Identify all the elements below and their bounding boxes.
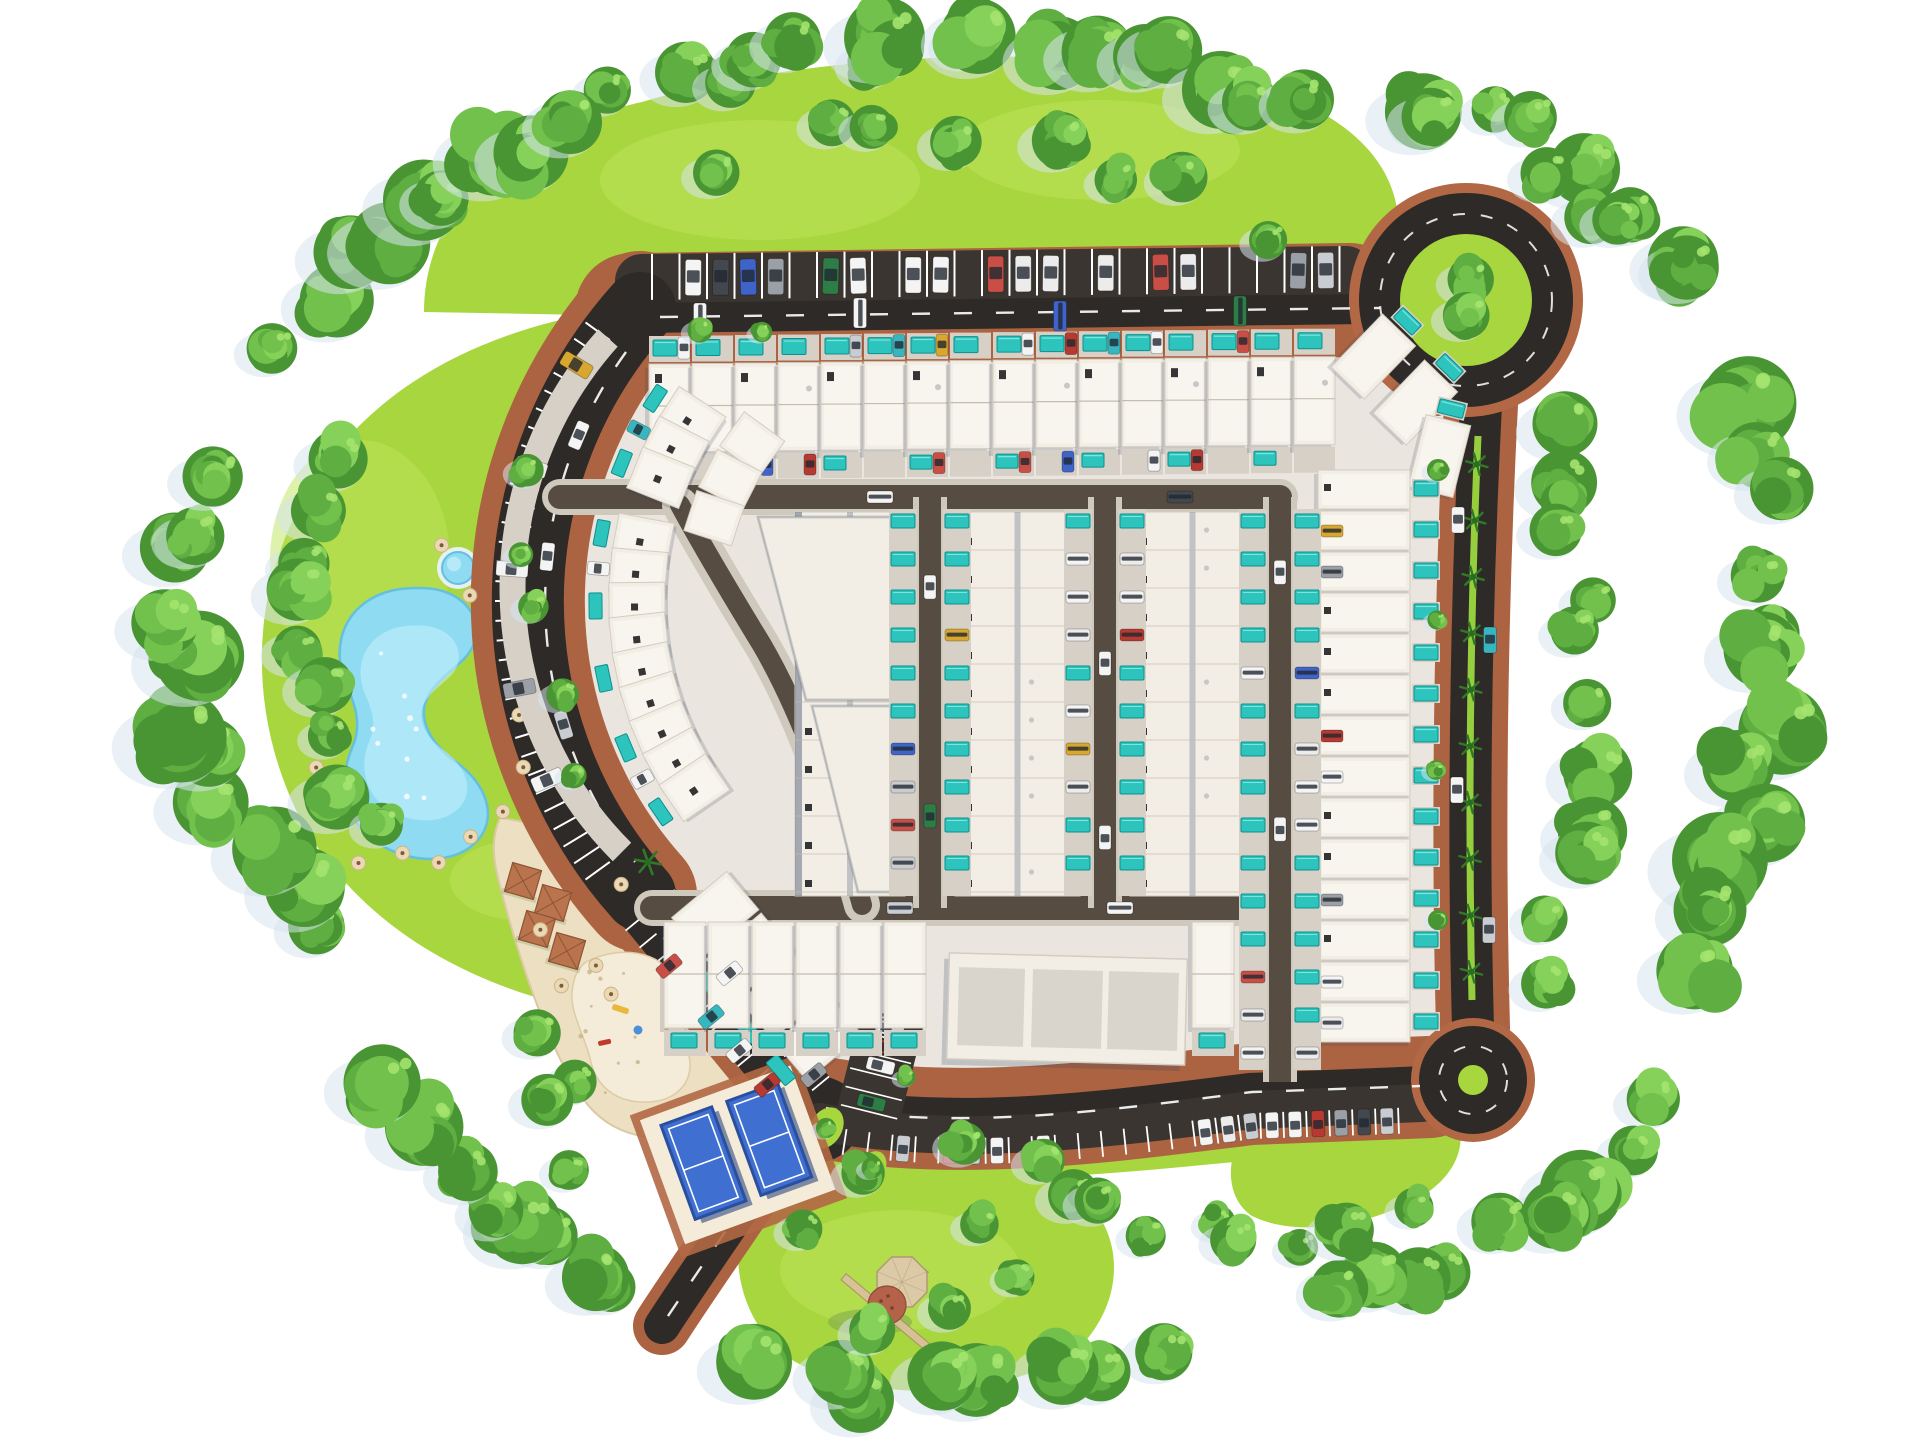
house-unit — [1188, 922, 1234, 1056]
roof-hatch — [638, 668, 646, 676]
parked-car — [1321, 894, 1343, 906]
umbrella — [533, 923, 547, 937]
parked-car — [1066, 553, 1090, 565]
tree-highlight — [1574, 405, 1584, 415]
parked-car — [850, 335, 862, 357]
parking-stall-line — [1352, 1109, 1353, 1135]
parked-car — [932, 257, 949, 293]
car-windshield — [680, 344, 689, 351]
parking-stall-line — [1260, 1113, 1261, 1139]
tree-highlight — [1101, 1188, 1108, 1195]
car-windshield — [1122, 595, 1143, 599]
parked-car — [1241, 1047, 1265, 1059]
car-windshield — [1068, 747, 1089, 751]
tree-highlight — [1704, 950, 1715, 961]
tree-canopy-blob — [515, 1017, 533, 1035]
car-windshield — [947, 633, 968, 637]
car-windshield — [1068, 785, 1089, 789]
playground-speckle — [604, 1091, 607, 1094]
palm-crown — [1468, 912, 1474, 918]
roof-inner — [844, 926, 878, 1024]
tree-highlight — [1612, 754, 1622, 764]
tree-highlight — [343, 781, 353, 791]
tree-canopy-blob — [980, 1375, 1008, 1403]
umbrella-pole — [517, 713, 521, 717]
rear-deck — [950, 451, 991, 477]
parked-car — [539, 542, 555, 571]
tree-highlight — [1584, 615, 1591, 622]
tree-highlight — [1177, 1336, 1185, 1344]
car-windshield — [852, 342, 861, 349]
car-windshield — [1323, 734, 1342, 738]
tree-highlight — [1737, 829, 1751, 843]
parked-car — [1243, 1113, 1259, 1140]
roof-inner — [1322, 597, 1406, 628]
car-windshield — [1276, 568, 1285, 576]
housing-column — [955, 512, 1080, 896]
car-windshield — [992, 1147, 1002, 1156]
roof-inner — [1322, 679, 1406, 710]
tree-highlight — [525, 546, 529, 550]
tree-highlight — [812, 1218, 818, 1224]
tree-highlight — [1051, 1147, 1057, 1153]
parked-car — [1321, 1017, 1343, 1029]
tree-canopy-blob — [1702, 898, 1729, 925]
tree-highlight — [1566, 516, 1574, 524]
rear-deck — [1294, 447, 1335, 473]
tree-highlight — [828, 1122, 831, 1125]
tree-canopy-blob — [1672, 246, 1695, 269]
tree-highlight — [1601, 149, 1612, 160]
car-windshield — [1290, 1121, 1300, 1130]
tree-highlight — [800, 26, 808, 34]
tree-canopy-blob — [574, 1078, 591, 1095]
tree-highlight — [1639, 1136, 1646, 1143]
tree-canopy-blob — [156, 591, 195, 630]
tree-canopy-blob — [1530, 162, 1561, 193]
roof-panel — [957, 967, 1025, 1047]
car-windshield — [1150, 456, 1159, 463]
parked-car — [822, 258, 839, 294]
tree-highlight — [1448, 1253, 1456, 1261]
tree-highlight — [531, 460, 536, 465]
car-windshield — [1313, 1120, 1323, 1129]
parked-car — [988, 256, 1004, 292]
house-unit — [1161, 330, 1206, 474]
roof-hatch — [827, 372, 834, 381]
car-windshield — [893, 785, 914, 789]
tree-highlight — [337, 721, 343, 727]
car-windshield — [1200, 1128, 1211, 1138]
tree-canopy-blob — [553, 1159, 576, 1182]
tree-highlight — [770, 1343, 781, 1354]
car-windshield — [1067, 339, 1076, 346]
roof-inner — [1297, 361, 1332, 441]
tree-highlight — [1756, 373, 1770, 387]
parked-car — [905, 257, 921, 293]
car-windshield — [1382, 1117, 1392, 1126]
car-windshield — [1068, 709, 1089, 713]
parked-car — [1321, 976, 1343, 988]
roof-inner — [800, 926, 834, 1024]
car-windshield — [858, 300, 862, 327]
site-plan: Aerial 3D master plan rendering of a gat… — [0, 0, 1920, 1443]
tree-highlight — [1244, 1224, 1251, 1231]
tree-canopy-blob — [1535, 956, 1568, 989]
car-windshield — [1243, 671, 1264, 675]
parked-car — [1197, 1118, 1213, 1145]
tree-highlight — [179, 603, 189, 613]
tree-canopy-blob — [1319, 1286, 1345, 1312]
playground-speckle — [617, 1062, 620, 1065]
ac-unit — [1322, 380, 1328, 386]
tree-highlight — [225, 460, 234, 469]
car-windshield — [1101, 834, 1110, 842]
house-unit — [836, 922, 882, 1056]
parking-stall-line — [1398, 1108, 1399, 1134]
tree-canopy-blob — [318, 716, 333, 731]
tree-highlight — [1221, 1210, 1226, 1215]
tree-highlight — [878, 1316, 885, 1323]
car-windshield — [1044, 266, 1057, 278]
tree-highlight — [764, 326, 767, 329]
house-unit — [1290, 329, 1335, 473]
umbrella-pole — [501, 810, 505, 814]
tree-canopy-blob — [1535, 904, 1556, 925]
house-unit — [946, 333, 991, 477]
parking-stall-line — [1306, 1111, 1307, 1137]
playground-speckle — [583, 1029, 587, 1033]
dome-dot — [879, 1299, 883, 1303]
tree-highlight — [1721, 886, 1732, 897]
water-sparkle — [414, 726, 419, 731]
tree-canopy-blob — [1563, 845, 1596, 878]
car-windshield — [512, 682, 525, 696]
parked-car — [1241, 971, 1265, 983]
umbrella — [432, 856, 446, 870]
tree-canopy-blob — [360, 810, 385, 835]
tree-highlight — [1662, 1086, 1670, 1094]
roof-inner — [1322, 802, 1406, 833]
roof-hatch — [1257, 367, 1264, 376]
roof-inner — [1322, 843, 1406, 874]
parked-car — [891, 857, 915, 869]
car-windshield — [893, 861, 914, 865]
car-windshield — [806, 460, 815, 467]
tree-canopy-blob — [295, 679, 322, 706]
ac-unit — [1029, 679, 1034, 684]
tree-highlight — [974, 1132, 980, 1138]
ac-unit — [1204, 755, 1209, 760]
car-windshield — [1223, 1125, 1234, 1135]
car-windshield — [1453, 515, 1463, 524]
tree-canopy-blob — [969, 1199, 996, 1226]
tree-canopy-blob — [1226, 1221, 1257, 1252]
parked-car — [933, 453, 945, 474]
tree-highlight — [1747, 748, 1758, 759]
house-unit — [989, 332, 1034, 476]
roof-panel — [1031, 969, 1103, 1049]
car-windshield — [1323, 775, 1342, 779]
tree-highlight — [194, 706, 208, 720]
playground-speckle — [633, 1036, 636, 1039]
entry-mat — [805, 842, 812, 849]
parked-car — [1151, 332, 1163, 354]
tree-highlight — [699, 54, 708, 63]
umbrella — [554, 979, 568, 993]
parked-car — [891, 781, 915, 793]
tree-canopy-blob — [1230, 95, 1262, 127]
tree-highlight — [1442, 915, 1445, 918]
car-windshield — [898, 1145, 909, 1155]
umbrella — [351, 856, 365, 870]
tree-canopy-blob — [472, 1204, 503, 1235]
tree-canopy-blob — [1732, 568, 1764, 600]
playground-speckle — [598, 977, 602, 981]
tree-canopy-blob — [561, 772, 577, 788]
palm-crown — [1468, 687, 1474, 693]
tree-highlight — [1418, 1197, 1424, 1203]
tree-highlight — [528, 1202, 540, 1214]
car-windshield — [1193, 456, 1202, 463]
frontage-deck — [889, 509, 917, 896]
tree-highlight — [1700, 246, 1709, 255]
car-windshield — [1452, 785, 1462, 794]
parked-car — [1062, 451, 1074, 472]
car-windshield — [1246, 1122, 1257, 1132]
tree-canopy-blob — [320, 446, 352, 478]
tree-highlight — [1596, 690, 1603, 697]
parked-car — [990, 1137, 1003, 1163]
tree-highlight — [1112, 1353, 1121, 1362]
car-windshield — [1359, 1118, 1369, 1127]
parked-car — [1452, 507, 1465, 533]
slab-seam-shadow — [1190, 512, 1196, 896]
palm-crown — [1470, 574, 1476, 580]
tree-canopy-blob — [300, 485, 331, 516]
tree-highlight — [1155, 1223, 1161, 1229]
car-windshield — [1297, 671, 1318, 675]
roof-hatch — [1085, 369, 1092, 378]
car-windshield — [542, 551, 553, 561]
car-windshield — [869, 495, 892, 499]
parked-car — [1191, 450, 1203, 471]
parked-car — [1311, 1110, 1325, 1136]
tree-highlight — [284, 332, 291, 339]
tree-canopy-blob — [786, 1215, 805, 1234]
roof-inner — [756, 926, 790, 1024]
umbrella — [614, 877, 628, 891]
roof-inner — [888, 926, 922, 1024]
parked-car — [924, 804, 936, 828]
umbrella-pole — [437, 861, 441, 865]
parked-car — [768, 259, 784, 295]
tree-highlight — [1443, 97, 1452, 106]
tree-canopy-blob — [942, 1299, 965, 1322]
parked-car — [1295, 743, 1319, 755]
house-unit — [817, 334, 862, 478]
car-windshield — [1485, 635, 1495, 644]
car-windshield — [895, 341, 904, 348]
tree-canopy-blob — [563, 1259, 608, 1304]
house-unit — [860, 334, 905, 478]
car-windshield — [1297, 823, 1318, 827]
parked-car — [1334, 1110, 1348, 1136]
tree-highlight — [602, 1255, 612, 1265]
tree-canopy-blob — [937, 1131, 963, 1157]
tree-highlight — [585, 1070, 591, 1076]
ac-unit — [1029, 755, 1034, 760]
car-windshield — [1110, 339, 1119, 346]
car-windshield — [1021, 458, 1030, 465]
tree-highlight — [1309, 85, 1318, 94]
tree-canopy-blob — [882, 32, 918, 68]
tree-highlight — [990, 11, 1001, 22]
car-windshield — [893, 823, 914, 827]
car-windshield — [935, 459, 944, 466]
umbrella — [395, 846, 409, 860]
parked-car — [1321, 730, 1343, 742]
house-unit — [903, 333, 948, 477]
umbrella-pole — [538, 928, 542, 932]
car-windshield — [989, 267, 1002, 279]
tree-canopy-blob — [167, 533, 189, 555]
tree-highlight — [1430, 1260, 1439, 1269]
car-windshield — [1068, 633, 1089, 637]
umbrella-pole — [619, 882, 623, 886]
parked-car — [1167, 491, 1193, 503]
frontage-deck — [943, 509, 971, 896]
parked-car — [804, 454, 816, 475]
palm-crown — [1474, 461, 1480, 467]
roof-hatch — [632, 571, 640, 579]
parked-car — [685, 259, 701, 295]
car-windshield — [1319, 263, 1332, 275]
umbrella-pole — [521, 765, 525, 769]
car-windshield — [1297, 1051, 1318, 1055]
house-unit — [774, 335, 819, 479]
car-windshield — [1017, 267, 1030, 279]
roof-inner — [953, 365, 988, 445]
parked-car — [1237, 331, 1249, 353]
tree-canopy-blob — [776, 31, 815, 70]
roof-hatch — [1171, 368, 1178, 377]
car-windshield — [1064, 457, 1073, 464]
parked-car — [1120, 553, 1144, 565]
tree-canopy-blob — [1058, 1356, 1086, 1384]
parked-car — [1295, 781, 1319, 793]
tree-highlight — [1069, 123, 1077, 131]
parked-car — [895, 1135, 910, 1162]
car-windshield — [1243, 975, 1264, 979]
tree-canopy-blob — [1339, 1228, 1373, 1262]
palm-crown — [1468, 969, 1474, 975]
tree-highlight — [556, 1086, 564, 1094]
tree-highlight — [580, 100, 589, 109]
parked-car — [887, 902, 913, 914]
palm-crown — [1469, 630, 1475, 636]
parked-car — [1380, 1108, 1394, 1134]
umbrella-pole — [314, 765, 318, 769]
tree-highlight — [277, 333, 284, 340]
tree-highlight — [1787, 467, 1796, 476]
tree-canopy-blob — [994, 1268, 1017, 1291]
dome-dot — [890, 1306, 894, 1310]
umbrella — [589, 958, 603, 972]
tree-canopy-blob — [1433, 619, 1440, 626]
car-windshield — [889, 906, 912, 910]
entry-mat — [805, 804, 812, 811]
tree-highlight — [1562, 1192, 1572, 1202]
parked-car — [1241, 667, 1265, 679]
playground-speckle — [578, 1034, 583, 1039]
car-windshield — [1169, 495, 1192, 499]
house-unit — [880, 922, 926, 1056]
entry-mat — [1324, 607, 1331, 614]
tree-canopy-blob — [1569, 154, 1600, 185]
roof-inner — [867, 366, 902, 446]
tree-canopy-blob — [1144, 1347, 1167, 1370]
tree-highlight — [1509, 1206, 1517, 1214]
car-windshield — [938, 341, 947, 348]
parked-car — [1265, 1112, 1279, 1138]
water-sparkle — [422, 795, 427, 800]
umbrella-pole — [609, 992, 613, 996]
tree-highlight — [169, 600, 179, 610]
tree-highlight — [578, 768, 582, 772]
car-windshield — [824, 269, 837, 282]
car-windshield — [1323, 529, 1342, 533]
tree-highlight — [389, 811, 395, 817]
tree-highlight — [1237, 1227, 1244, 1234]
tree-canopy-blob — [867, 1161, 875, 1169]
car-windshield — [1058, 303, 1062, 330]
ac-unit — [1029, 869, 1034, 874]
tree-canopy-blob — [524, 600, 539, 615]
house-unit — [1204, 330, 1249, 474]
tree-highlight — [1387, 1255, 1397, 1265]
roof-inner — [1125, 363, 1160, 443]
car-windshield — [1297, 747, 1318, 751]
parked-car — [1066, 629, 1090, 641]
tree-highlight — [1556, 156, 1564, 164]
tree-highlight — [1351, 1212, 1359, 1220]
tree-highlight — [723, 160, 730, 167]
tree-highlight — [988, 1214, 994, 1220]
parked-car — [1066, 743, 1090, 755]
parked-car — [893, 335, 905, 357]
parked-car — [867, 491, 893, 503]
tree-canopy-blob — [1460, 308, 1479, 327]
parked-car — [1042, 255, 1059, 291]
umbrella-pole — [400, 851, 404, 855]
tree-highlight — [1168, 1335, 1176, 1343]
tree-canopy-blob — [1778, 714, 1827, 763]
house-unit — [1075, 331, 1120, 475]
tree-canopy-blob — [529, 1088, 548, 1107]
parked-car — [740, 259, 757, 295]
roof-panel — [1107, 971, 1179, 1051]
ac-unit — [1064, 383, 1070, 389]
housing-column — [1130, 512, 1255, 896]
parked-car — [1234, 296, 1247, 326]
car-windshield — [1101, 659, 1110, 667]
tree-highlight — [1440, 463, 1443, 466]
parked-car — [1152, 254, 1169, 290]
parked-car — [1066, 705, 1090, 717]
entry-mat — [1324, 812, 1331, 819]
roof-inner — [1322, 925, 1406, 956]
